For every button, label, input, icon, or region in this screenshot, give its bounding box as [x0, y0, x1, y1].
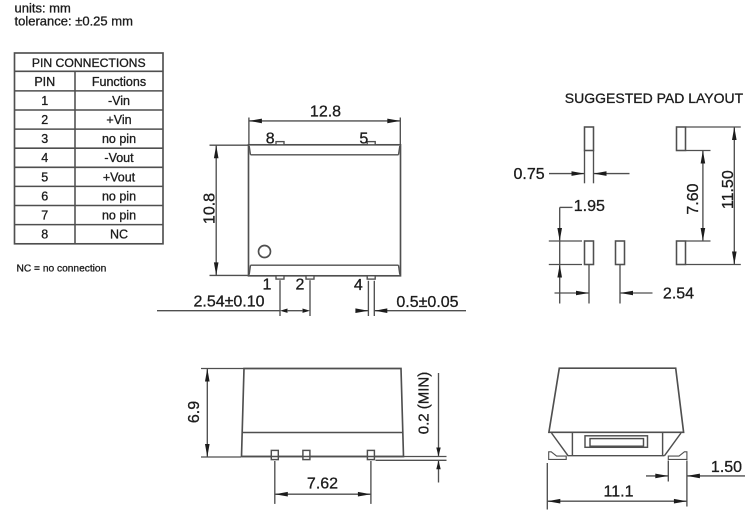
svg-text:7.62: 7.62: [307, 476, 338, 493]
svg-text:11.50: 11.50: [720, 170, 737, 209]
svg-text:1: 1: [41, 94, 48, 108]
svg-text:4: 4: [354, 277, 363, 294]
svg-text:no pin: no pin: [102, 209, 136, 223]
svg-text:1.50: 1.50: [711, 459, 742, 476]
svg-text:tolerance: ±0.25 mm: tolerance: ±0.25 mm: [15, 14, 133, 29]
svg-text:2: 2: [296, 277, 305, 294]
svg-text:3: 3: [41, 132, 48, 146]
svg-text:+Vin: +Vin: [106, 113, 131, 127]
svg-text:5: 5: [359, 131, 368, 148]
svg-text:0.5±0.05: 0.5±0.05: [396, 294, 458, 311]
svg-text:-Vin: -Vin: [108, 94, 130, 108]
svg-text:1.95: 1.95: [574, 198, 605, 215]
svg-text:1: 1: [263, 277, 272, 294]
svg-text:12.8: 12.8: [310, 104, 341, 121]
svg-text:0.75: 0.75: [514, 166, 545, 183]
svg-text:2.54: 2.54: [663, 285, 694, 302]
svg-text:PIN: PIN: [34, 75, 55, 89]
svg-text:no pin: no pin: [102, 132, 136, 146]
svg-text:-Vout: -Vout: [104, 151, 134, 165]
svg-text:2: 2: [41, 113, 48, 127]
svg-text:no pin: no pin: [102, 189, 136, 203]
svg-text:8: 8: [41, 228, 48, 242]
svg-text:SUGGESTED PAD LAYOUT: SUGGESTED PAD LAYOUT: [565, 90, 744, 106]
svg-text:+Vout: +Vout: [103, 170, 136, 184]
svg-text:NC: NC: [110, 228, 128, 242]
svg-text:6: 6: [41, 189, 48, 203]
svg-text:7: 7: [41, 209, 48, 223]
svg-text:NC = no connection: NC = no connection: [17, 264, 107, 275]
svg-text:2.54±0.10: 2.54±0.10: [193, 294, 264, 311]
svg-text:8: 8: [266, 131, 275, 148]
svg-text:6.9: 6.9: [186, 401, 203, 423]
svg-text:7.60: 7.60: [685, 183, 702, 214]
svg-text:10.8: 10.8: [202, 193, 219, 224]
svg-text:Functions: Functions: [92, 75, 146, 89]
svg-text:4: 4: [41, 151, 48, 165]
svg-text:0.2 (MIN): 0.2 (MIN): [416, 372, 433, 435]
svg-text:5: 5: [41, 170, 48, 184]
svg-text:PIN CONNECTIONS: PIN CONNECTIONS: [32, 56, 146, 70]
svg-text:11.1: 11.1: [604, 484, 634, 501]
